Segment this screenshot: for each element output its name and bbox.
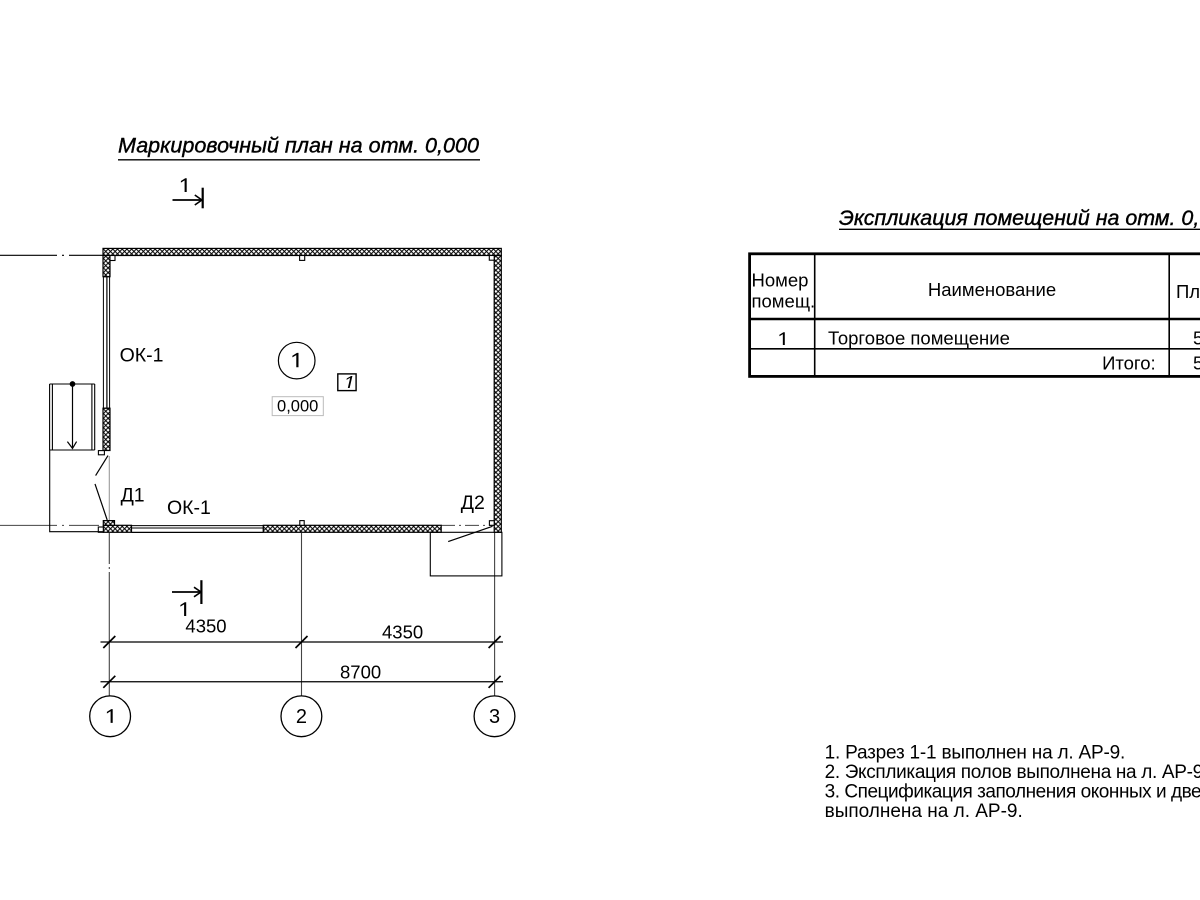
svg-text:0,000: 0,000 xyxy=(277,397,318,415)
svg-text:Номер: Номер xyxy=(752,270,809,291)
svg-text:ОК-1: ОК-1 xyxy=(120,345,164,367)
svg-text:1. Разрез 1-1 выполнен на л. А: 1. Разрез 1-1 выполнен на л. АР-9. xyxy=(825,743,1126,764)
svg-text:3: 3 xyxy=(489,706,500,728)
svg-text:4350: 4350 xyxy=(382,621,423,642)
svg-text:выполнена на л. АР-9.: выполнена на л. АР-9. xyxy=(825,801,1023,822)
svg-text:Наименование: Наименование xyxy=(928,279,1056,300)
svg-text:Д2: Д2 xyxy=(461,492,485,514)
svg-text:помещ.: помещ. xyxy=(752,291,816,312)
svg-text:8700: 8700 xyxy=(340,662,381,683)
svg-text:Маркировочный план на отм. 0,0: Маркировочный план на отм. 0,000 xyxy=(118,134,479,158)
svg-text:Д1: Д1 xyxy=(121,484,145,506)
svg-text:3. Спецификация заполнения око: 3. Спецификация заполнения оконных и две… xyxy=(825,782,1200,803)
svg-text:Площадь, м²: Площадь, м² xyxy=(1176,281,1200,302)
svg-text:Экспликация помещений на отм.: Экспликация помещений на отм. 0,000 xyxy=(839,206,1200,230)
svg-text:Итого:: Итого: xyxy=(1102,353,1156,374)
svg-text:52,9: 52,9 xyxy=(1193,328,1200,349)
svg-text:2: 2 xyxy=(296,706,307,728)
svg-text:52,9: 52,9 xyxy=(1193,353,1200,374)
svg-text:4350: 4350 xyxy=(185,616,226,637)
svg-text:ОК-1: ОК-1 xyxy=(167,497,211,519)
svg-text:Торговое помещение: Торговое помещение xyxy=(828,328,1010,349)
svg-text:2. Экспликация полов выполнена: 2. Экспликация полов выполнена на л. АР-… xyxy=(825,762,1200,783)
